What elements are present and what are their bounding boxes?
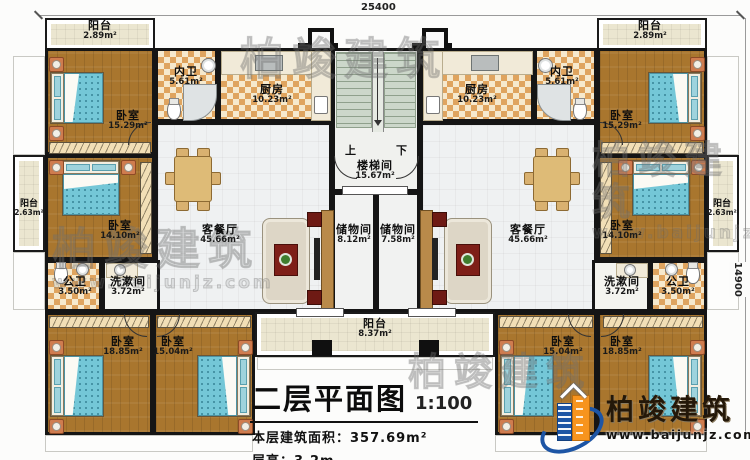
balcony-column xyxy=(419,340,439,356)
pillow xyxy=(54,99,61,120)
stair-arrow-line xyxy=(377,58,378,120)
nightstand xyxy=(691,160,706,175)
room-area: 3.50m² xyxy=(652,288,704,297)
room-name: 内卫 xyxy=(161,66,211,78)
room-name: 储物间 xyxy=(376,224,420,236)
pillow xyxy=(691,99,698,120)
plan-area-line: 本层建筑面积：357.69m² xyxy=(252,427,478,446)
room-area: 15.04m² xyxy=(143,348,203,357)
chimney-right xyxy=(422,28,448,52)
plan-title-row: 二层平面图1:100 xyxy=(250,376,478,423)
kitchen-sink xyxy=(426,96,440,114)
room-label-storage-right: 储物间7.58m² xyxy=(376,224,420,244)
room-label-living-right: 客餐厅45.66m² xyxy=(493,224,563,244)
brand-name: 柏竣建筑 xyxy=(606,396,750,424)
room-area: 15.29m² xyxy=(592,122,652,131)
bed-headboard xyxy=(237,356,250,416)
pillow xyxy=(92,164,116,171)
room-name: 洗漱间 xyxy=(590,276,654,288)
bed xyxy=(50,355,104,417)
eave-outline-bottom-center xyxy=(257,357,493,370)
room-name: 洗漱间 xyxy=(96,276,160,288)
pillow xyxy=(504,359,511,385)
pillow xyxy=(66,164,90,171)
bed-sheet-fold xyxy=(222,357,236,415)
room-area: 2.89m² xyxy=(70,32,130,41)
nightstand xyxy=(618,160,633,175)
pillow xyxy=(504,387,511,413)
eave-outline-right-top xyxy=(707,56,739,155)
nightstand xyxy=(49,126,64,141)
bed-mattress xyxy=(198,356,237,416)
room-name: 阳台 xyxy=(70,20,130,32)
room-label-bath-inner-right: 内卫5.61m² xyxy=(537,66,587,86)
nightstand xyxy=(49,419,64,434)
room-area: 15.04m² xyxy=(533,348,593,357)
stair-up-label: 上 xyxy=(345,142,356,158)
room-label-toilet-left: 公卫3.50m² xyxy=(49,276,101,296)
bed xyxy=(197,355,251,417)
nightstand xyxy=(49,57,64,72)
pillow xyxy=(691,76,698,97)
dimension-line-right xyxy=(745,18,746,438)
room-label-bedroom-bottom-left-inner: 卧室15.04m² xyxy=(143,336,203,356)
bed-headboard xyxy=(688,73,701,123)
room-label-bedroom-top-left: 卧室15.29m² xyxy=(98,110,158,130)
bed-mattress xyxy=(64,356,103,416)
room-name: 卧室 xyxy=(90,220,150,232)
room-name: 卧室 xyxy=(533,336,593,348)
pillow xyxy=(636,164,660,171)
nightstand xyxy=(49,340,64,355)
room-area: 18.85m² xyxy=(592,348,652,357)
plan-title: 二层平面图 xyxy=(252,382,407,416)
room-name: 内卫 xyxy=(537,66,587,78)
room-area: 3.50m² xyxy=(49,288,101,297)
nightstand xyxy=(49,160,64,175)
bed-sheet-fold xyxy=(673,74,687,122)
dining-table xyxy=(174,156,212,202)
room-name: 卧室 xyxy=(592,220,652,232)
stair-flight-right xyxy=(384,52,416,128)
room-name: 卧室 xyxy=(98,110,158,122)
stair-arrow-head xyxy=(374,120,382,126)
room-name: 卧室 xyxy=(592,336,652,348)
brand-logo: 柏竣建筑 www.baijunjz.com xyxy=(540,386,750,452)
room-label-balcony-bottom: 阳台8.37m² xyxy=(345,318,405,338)
nightstand xyxy=(690,126,705,141)
room-label-balcony-top-right: 阳台2.89m² xyxy=(620,20,680,40)
room-area: 14.10m² xyxy=(592,232,652,241)
stove xyxy=(255,55,283,71)
eave-outline-left-top xyxy=(13,56,45,155)
room-label-bath-inner-left: 内卫5.61m² xyxy=(161,66,211,86)
nightstand xyxy=(121,160,136,175)
bed-sheet-fold xyxy=(64,175,118,189)
room-label-balcony-top-left: 阳台2.89m² xyxy=(70,20,130,40)
room-area: 2.63m² xyxy=(705,209,739,217)
room-label-bedroom-bottom-right-inner: 卧室15.04m² xyxy=(533,336,593,356)
bed-mattress xyxy=(649,73,688,123)
room-label-balcony-right: 阳台2.63m² xyxy=(705,200,739,217)
bed xyxy=(62,160,120,216)
balcony-sliding-door xyxy=(408,308,456,317)
room-area: 10.23m² xyxy=(242,96,302,105)
room-label-bedroom-mid-left: 卧室14.10m² xyxy=(90,220,150,240)
room-name: 厨房 xyxy=(447,84,507,96)
tv xyxy=(432,238,438,280)
bed-headboard xyxy=(501,356,514,416)
bed xyxy=(50,72,104,124)
room-name: 客餐厅 xyxy=(493,224,563,236)
nightstand xyxy=(238,340,253,355)
nightstand xyxy=(499,419,514,434)
floor-plan-canvas: 25400 14900 xyxy=(0,0,750,460)
plan-height-line: 层高：3.2m xyxy=(252,450,478,460)
bed xyxy=(632,160,690,216)
bed-sheet-fold xyxy=(515,357,529,415)
room-label-toilet-right: 公卫3.50m² xyxy=(652,276,704,296)
room-area: 3.72m² xyxy=(590,288,654,297)
logo-building-blue xyxy=(557,403,572,441)
dimension-right-value: 14900 xyxy=(729,262,746,297)
room-label-kitchen-right: 厨房10.23m² xyxy=(447,84,507,104)
nightstand xyxy=(499,340,514,355)
pillow xyxy=(54,359,61,385)
room-name: 卧室 xyxy=(592,110,652,122)
plan-scale: 1:100 xyxy=(415,393,472,414)
room-area: 7.58m² xyxy=(376,236,420,245)
room-area: 8.37m² xyxy=(345,330,405,339)
bed-headboard xyxy=(63,161,119,174)
room-name: 阳台 xyxy=(620,20,680,32)
side-cabinet xyxy=(432,290,447,305)
brand-url: www.baijunjz.com xyxy=(606,427,750,442)
toilet xyxy=(167,100,181,120)
room-area: 14.10m² xyxy=(90,232,150,241)
pillow xyxy=(240,359,247,385)
room-area: 15.29m² xyxy=(98,122,158,131)
stair-flight-left xyxy=(336,52,372,128)
room-area: 45.66m² xyxy=(493,236,563,245)
room-storage-left xyxy=(332,192,376,312)
bed-sheet-fold xyxy=(65,74,79,122)
room-label-balcony-left: 阳台2.63m² xyxy=(13,200,45,217)
nightstand xyxy=(690,340,705,355)
plant xyxy=(281,255,290,264)
dining-table xyxy=(533,156,571,202)
room-area: 15.67m² xyxy=(345,172,405,181)
room-area: 5.61m² xyxy=(537,78,587,87)
bed-mattress xyxy=(63,174,119,215)
brand-logo-text: 柏竣建筑 www.baijunjz.com xyxy=(606,396,750,442)
balcony-sliding-door xyxy=(296,308,344,317)
brand-logo-icon xyxy=(540,386,602,452)
kitchen-sink xyxy=(314,96,328,114)
room-name: 楼梯间 xyxy=(345,160,405,172)
bed xyxy=(648,72,702,124)
toilet xyxy=(573,100,587,120)
pillow xyxy=(54,387,61,413)
room-area: 5.61m² xyxy=(161,78,211,87)
room-area: 2.89m² xyxy=(620,32,680,41)
pillow xyxy=(54,76,61,97)
eave-outline-left-bottom xyxy=(13,252,45,310)
side-cabinet xyxy=(307,212,322,227)
tv xyxy=(314,238,320,280)
room-name: 客餐厅 xyxy=(185,224,255,236)
room-name: 厨房 xyxy=(242,84,302,96)
room-label-stairwell: 楼梯间15.67m² xyxy=(345,160,405,180)
chimney-left xyxy=(308,28,334,52)
room-name: 卧室 xyxy=(143,336,203,348)
room-area: 2.63m² xyxy=(13,209,45,217)
pillow xyxy=(691,359,698,385)
bed-mattress xyxy=(633,174,689,215)
side-cabinet xyxy=(307,290,322,305)
pillow xyxy=(240,387,247,413)
plant xyxy=(463,255,472,264)
room-storage-right xyxy=(376,192,420,312)
room-label-living-left: 客餐厅45.66m² xyxy=(185,224,255,244)
room-area: 45.66m² xyxy=(185,236,255,245)
side-cabinet xyxy=(432,212,447,227)
room-area: 8.12m² xyxy=(332,236,376,245)
stove xyxy=(471,55,499,71)
balcony-column xyxy=(312,340,332,356)
dimension-top-value: 25400 xyxy=(358,2,399,13)
room-label-storage-left: 储物间8.12m² xyxy=(332,224,376,244)
entry-threshold xyxy=(342,186,408,195)
room-name: 储物间 xyxy=(332,224,376,236)
room-label-wash-left: 洗漱间3.72m² xyxy=(96,276,160,296)
room-area: 3.72m² xyxy=(96,288,160,297)
bed-sheet-fold xyxy=(634,175,688,189)
stair-down-label: 下 xyxy=(396,142,407,158)
bed-headboard xyxy=(51,73,64,123)
room-label-kitchen-left: 厨房10.23m² xyxy=(242,84,302,104)
pillow xyxy=(662,164,686,171)
room-name: 阳台 xyxy=(345,318,405,330)
room-label-bedroom-mid-right: 卧室14.10m² xyxy=(592,220,652,240)
bed-sheet-fold xyxy=(65,357,79,415)
bed-headboard xyxy=(51,356,64,416)
room-label-bedroom-top-right: 卧室15.29m² xyxy=(592,110,652,130)
title-block: 二层平面图1:100 本层建筑面积：357.69m² 层高：3.2m xyxy=(250,376,478,460)
room-area: 10.23m² xyxy=(447,96,507,105)
room-label-bedroom-bottom-right-outer: 卧室18.85m² xyxy=(592,336,652,356)
room-name: 公卫 xyxy=(652,276,704,288)
bed-headboard xyxy=(633,161,689,174)
room-label-wash-right: 洗漱间3.72m² xyxy=(590,276,654,296)
eave-outline-bottom-left xyxy=(45,435,253,452)
room-name: 公卫 xyxy=(49,276,101,288)
dimension-line-top xyxy=(38,15,740,16)
nightstand xyxy=(690,57,705,72)
